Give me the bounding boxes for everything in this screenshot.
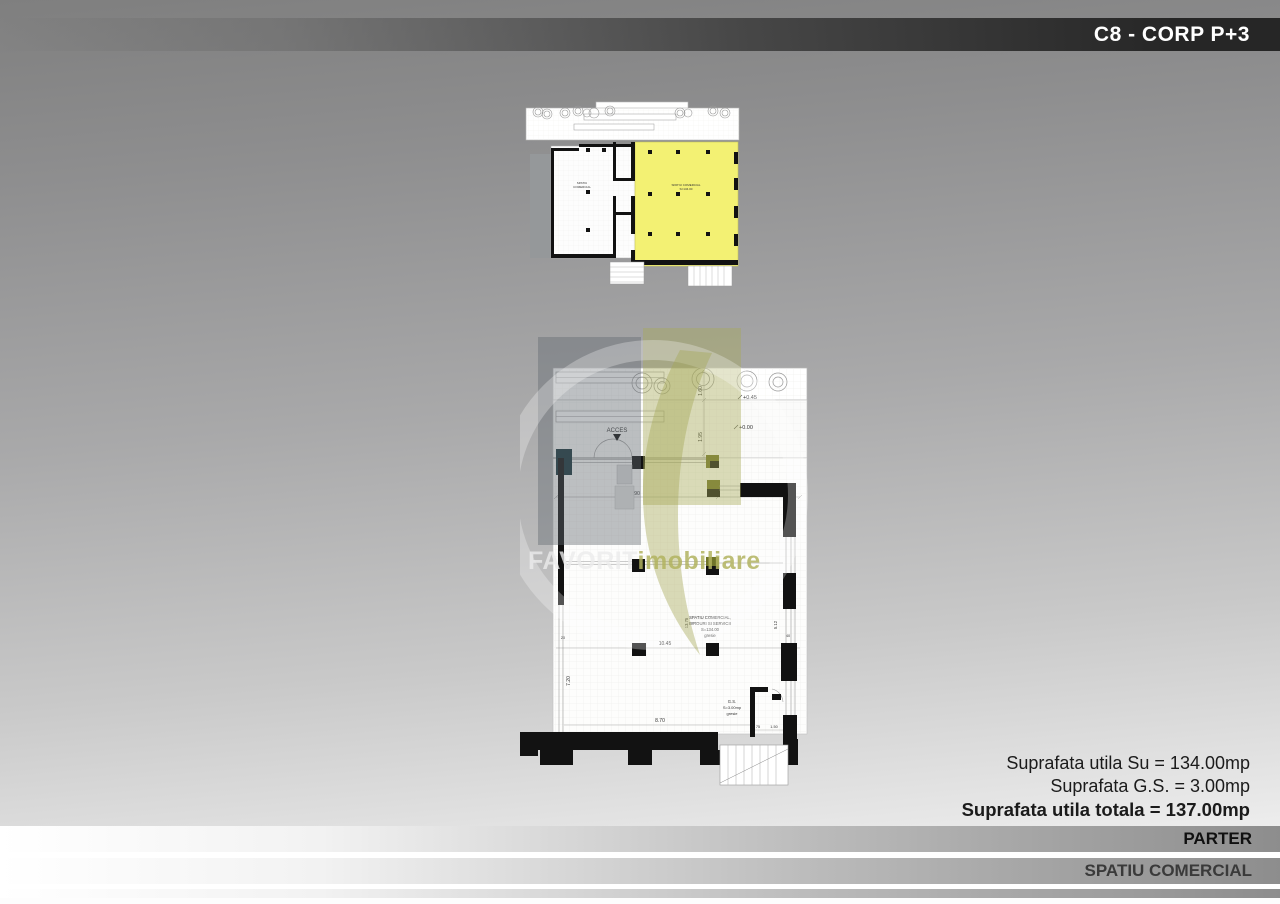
overview-highlighted-unit bbox=[635, 142, 738, 266]
elevation-floor: +0.00 bbox=[739, 425, 753, 431]
svg-text:G.S.: G.S. bbox=[728, 699, 736, 704]
area-usable: Suprafata utila Su = 134.00mp bbox=[962, 752, 1250, 775]
area-gs: Suprafata G.S. = 3.00mp bbox=[962, 775, 1250, 798]
svg-text:7.20: 7.20 bbox=[566, 676, 572, 686]
corp-title: C8 - CORP P+3 bbox=[1094, 23, 1250, 46]
title-bar: C8 - CORP P+3 bbox=[0, 18, 1280, 51]
svg-text:S=134.00: S=134.00 bbox=[680, 187, 693, 191]
bottom-accent-strip bbox=[0, 889, 1280, 898]
unit-type-label: SPATIU COMERCIAL bbox=[1085, 861, 1252, 880]
svg-text:8.70: 8.70 bbox=[655, 718, 665, 724]
svg-text:COMERCIAL: COMERCIAL bbox=[573, 185, 591, 189]
svg-text:1.50: 1.50 bbox=[770, 725, 777, 729]
plan-staircase bbox=[720, 745, 788, 785]
area-summary: Suprafata utila Su = 134.00mp Suprafata … bbox=[962, 752, 1250, 821]
floor-label: PARTER bbox=[1183, 829, 1252, 848]
overview-sidewalk bbox=[526, 102, 739, 140]
floorplan-sheet: C8 - CORP P+3 bbox=[0, 0, 1280, 904]
detail-floorplan: ACCES +0.45 +0.00 1.60 1.95 bbox=[520, 325, 810, 790]
overview-alley-strip bbox=[530, 154, 551, 258]
overview-floorplan-drawing: SPATIU COMERCIAL SPATIU COMERCIAL S=134.… bbox=[518, 100, 748, 292]
separator-strip-3 bbox=[0, 898, 1280, 904]
detail-floorplan-drawing: ACCES +0.45 +0.00 1.60 1.95 bbox=[520, 325, 810, 790]
floor-bar: PARTER bbox=[0, 826, 1280, 852]
svg-text:40: 40 bbox=[786, 634, 790, 638]
unit-type-bar: SPATIU COMERCIAL bbox=[0, 858, 1280, 884]
svg-text:75: 75 bbox=[756, 725, 760, 729]
overview-floorplan: SPATIU COMERCIAL SPATIU COMERCIAL S=134.… bbox=[518, 100, 748, 292]
svg-text:5.12: 5.12 bbox=[773, 620, 778, 629]
svg-text:S=3.00mp: S=3.00mp bbox=[723, 705, 742, 710]
svg-text:gresie: gresie bbox=[727, 711, 739, 716]
area-total: Suprafata utila totala = 137.00mp bbox=[962, 798, 1250, 821]
